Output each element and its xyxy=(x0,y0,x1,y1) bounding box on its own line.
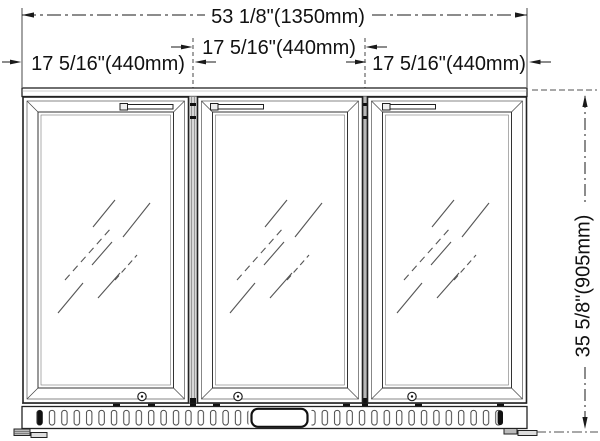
grille-center-panel xyxy=(252,409,308,427)
door-1 xyxy=(23,97,189,403)
door-3-lock xyxy=(408,392,416,400)
grille-slot-filled-left xyxy=(37,410,42,425)
left-feet xyxy=(14,429,47,438)
door2-width-label: 17 5/16"(440mm) xyxy=(202,37,356,59)
ventilation-grille xyxy=(22,407,527,429)
cabinet-top-band xyxy=(22,88,527,97)
door-1-lock xyxy=(138,392,146,400)
door-1-handle xyxy=(120,104,173,111)
right-feet xyxy=(504,429,537,436)
door-2-handle xyxy=(211,104,264,111)
door1-width-label: 17 5/16"(440mm) xyxy=(31,53,185,75)
door-3 xyxy=(368,97,527,403)
door-2 xyxy=(198,97,363,403)
three-door-cooler-front-elevation: 53 1/8"(1350mm) 17 5/16"(440mm) 17 5/16"… xyxy=(0,0,600,441)
door-2-lock xyxy=(234,392,242,400)
door-3-handle xyxy=(383,104,436,111)
door3-width-label: 17 5/16"(440mm) xyxy=(372,53,526,75)
height-label: 35 5/8"(905mm) xyxy=(572,215,594,358)
mullion-door1-door2 xyxy=(189,97,198,407)
grille-slot-filled-right xyxy=(498,410,503,425)
technical-drawing-canvas: 53 1/8"(1350mm) 17 5/16"(440mm) 17 5/16"… xyxy=(0,0,600,441)
overall-width-label: 53 1/8"(1350mm) xyxy=(211,6,365,28)
